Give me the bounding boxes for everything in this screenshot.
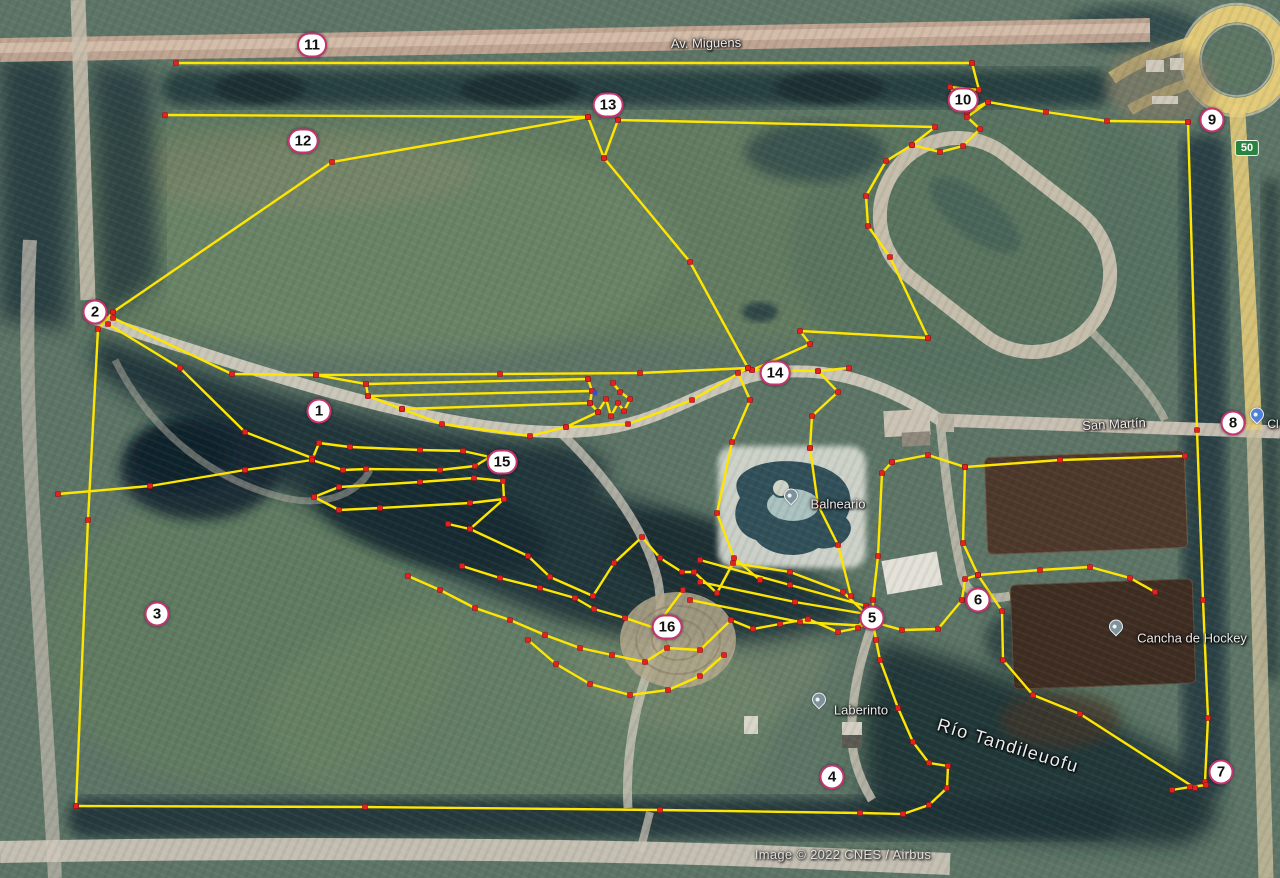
imagery-attribution: Image © 2022 CNES / Airbus — [755, 847, 931, 862]
waypoint-marker-13[interactable]: 13 — [593, 93, 624, 118]
waypoint-marker-12[interactable]: 12 — [288, 129, 319, 154]
waypoint-marker-4[interactable]: 4 — [820, 765, 845, 790]
waypoint-marker-15[interactable]: 15 — [487, 450, 518, 475]
place-pin-icon[interactable] — [1106, 617, 1126, 637]
waypoint-marker-1[interactable]: 1 — [307, 399, 332, 424]
label-rio-tandileuofu: Río Tandileuofu — [935, 714, 1082, 777]
satellite-map: 50 Image © 2022 CNES / Airbus 1234567891… — [0, 0, 1280, 878]
label-laberinto: Laberinto — [834, 703, 888, 718]
waypoint-marker-7[interactable]: 7 — [1209, 760, 1234, 785]
waypoint-marker-6[interactable]: 6 — [966, 588, 991, 613]
label-cancha-de-hockey: Cancha de Hockey — [1137, 631, 1247, 646]
waypoint-marker-8[interactable]: 8 — [1221, 411, 1246, 436]
waypoint-marker-5[interactable]: 5 — [860, 606, 885, 631]
waypoint-marker-10[interactable]: 10 — [948, 88, 979, 113]
waypoint-marker-2[interactable]: 2 — [83, 300, 108, 325]
waypoint-marker-3[interactable]: 3 — [145, 602, 170, 627]
waypoint-marker-16[interactable]: 16 — [652, 615, 683, 640]
place-pin-icon[interactable] — [809, 690, 829, 710]
place-pin-icon[interactable] — [781, 486, 801, 506]
label-san-martin: San Martín — [1082, 415, 1146, 433]
label-club: Cl — [1267, 417, 1278, 431]
waypoint-marker-14[interactable]: 14 — [760, 361, 791, 386]
waypoint-marker-9[interactable]: 9 — [1200, 108, 1225, 133]
annotation-layer: 50 Image © 2022 CNES / Airbus 1234567891… — [0, 0, 1280, 878]
route-50-shield: 50 — [1235, 140, 1259, 156]
label-balneario: Balneario — [811, 497, 866, 512]
place-pin-icon[interactable] — [1247, 405, 1267, 425]
waypoint-marker-11[interactable]: 11 — [297, 33, 327, 58]
label-av-miguens: Av. Miguens — [671, 35, 742, 51]
